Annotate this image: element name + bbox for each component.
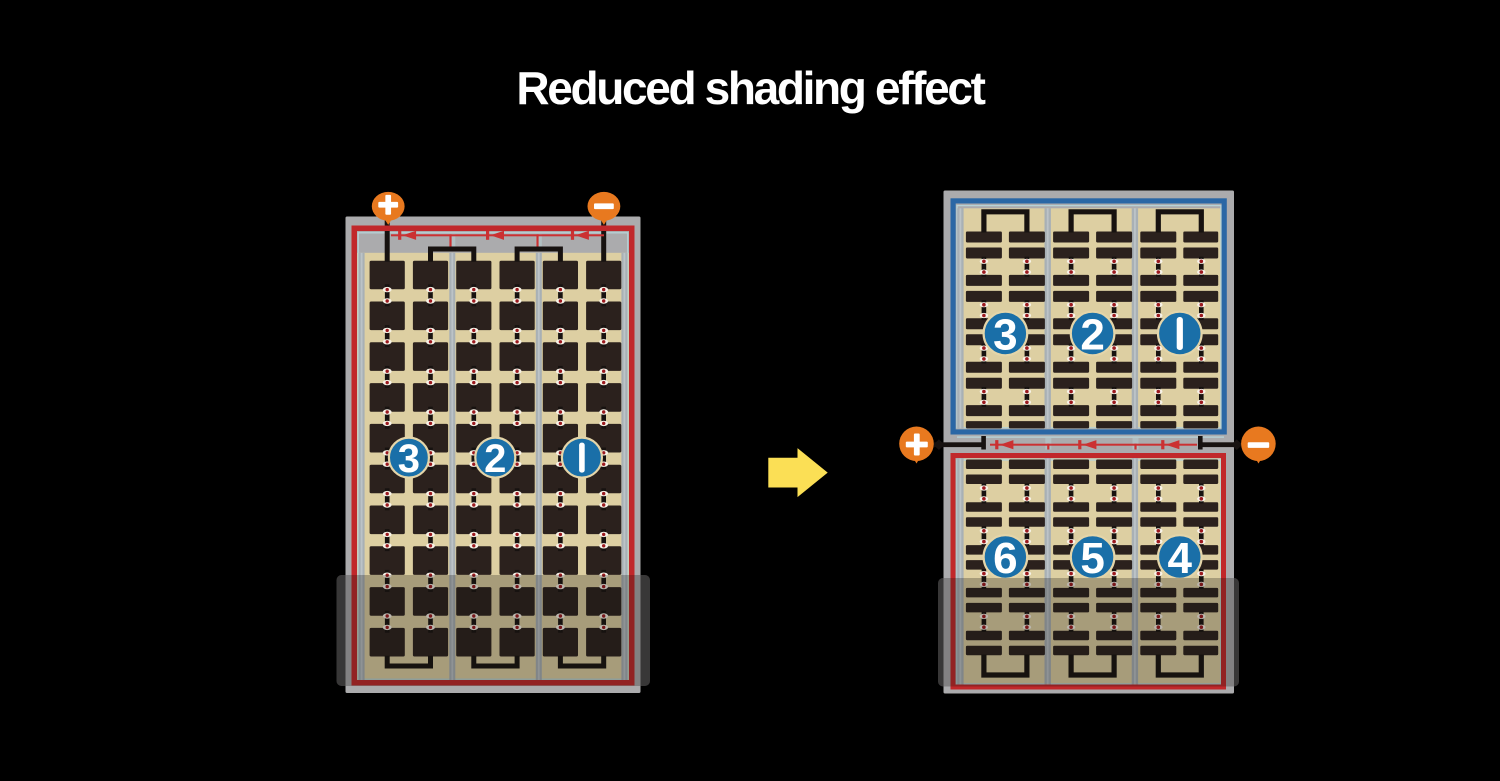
svg-text:4: 4 xyxy=(1168,534,1193,583)
svg-text:3: 3 xyxy=(993,311,1017,360)
svg-text:5: 5 xyxy=(1080,534,1104,583)
svg-text:2: 2 xyxy=(484,437,506,481)
svg-text:3: 3 xyxy=(398,437,420,481)
svg-text:Reduced shading effect: Reduced shading effect xyxy=(516,62,985,114)
svg-text:2: 2 xyxy=(1080,311,1104,360)
svg-text:6: 6 xyxy=(993,534,1017,583)
